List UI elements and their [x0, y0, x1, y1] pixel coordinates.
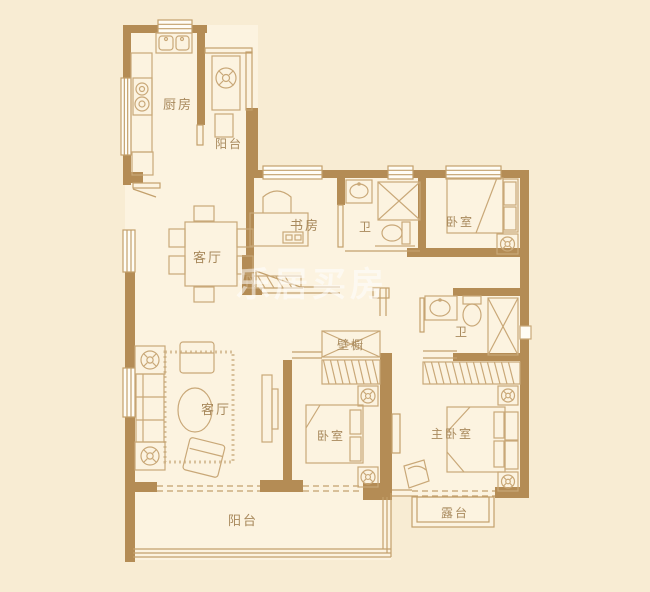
room-label-bath-1: 卫 — [359, 220, 373, 234]
room-label-study: 书房 — [290, 218, 320, 233]
room-label-bedroom-1: 卧室 — [446, 214, 474, 229]
room-label-balcony-top: 阳台 — [215, 136, 243, 151]
floor-plan-svg: 厨房阳台书房卫卧室客厅客厅壁橱卫卧室主卧室阳台露台乐居买房 — [0, 0, 650, 592]
room-label-bath-2: 卫 — [455, 325, 469, 339]
room-label-closet: 壁橱 — [337, 337, 365, 352]
room-label-terrace: 露台 — [441, 505, 469, 520]
room-label-bedroom-2: 卧室 — [317, 428, 345, 443]
room-label-master-bedroom: 主卧室 — [431, 426, 473, 441]
room-label-dining-hall: 客厅 — [193, 250, 223, 265]
room-label-balcony-bottom: 阳台 — [228, 513, 258, 528]
floor-plan: 厨房阳台书房卫卧室客厅客厅壁橱卫卧室主卧室阳台露台乐居买房 — [0, 0, 650, 592]
site-watermark: 乐居买房 — [236, 266, 388, 304]
room-label-living-hall: 客厅 — [201, 402, 231, 417]
room-label-kitchen: 厨房 — [163, 97, 193, 112]
